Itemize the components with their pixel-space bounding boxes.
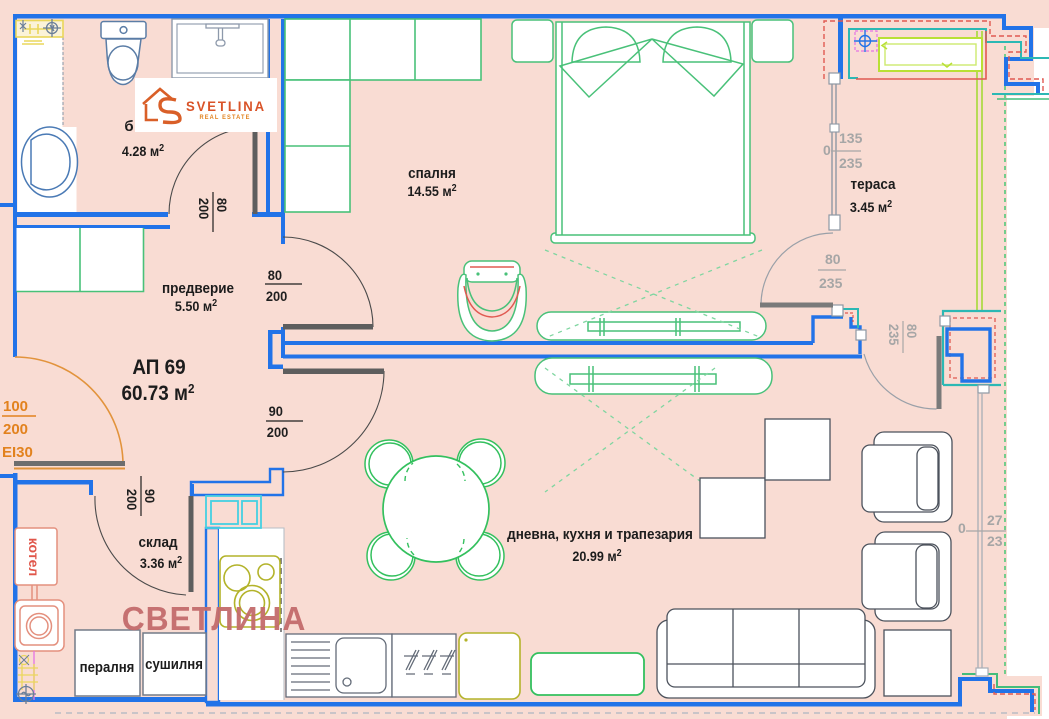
svg-text:135: 135	[839, 130, 863, 146]
svg-text:235: 235	[886, 324, 902, 346]
svg-text:27: 27	[987, 512, 1003, 528]
svg-text:предверие: предверие	[162, 280, 234, 297]
svg-text:60.73 м2: 60.73 м2	[121, 381, 194, 405]
svg-text:4.28 м2: 4.28 м2	[122, 143, 164, 160]
svg-text:SVETLINA: SVETLINA	[186, 99, 266, 114]
svg-text:80: 80	[268, 268, 282, 284]
svg-text:90: 90	[269, 404, 283, 420]
svg-text:склад: склад	[138, 534, 177, 551]
svg-text:23: 23	[987, 533, 1003, 549]
svg-text:80: 80	[214, 198, 230, 212]
svg-text:сушилня: сушилня	[145, 655, 203, 672]
svg-text:80: 80	[825, 251, 841, 267]
svg-text:дневна, кухня и трапезария: дневна, кухня и трапезария	[507, 526, 693, 543]
svg-text:0: 0	[958, 520, 966, 536]
svg-text:б: б	[124, 118, 133, 135]
svg-text:200: 200	[266, 289, 287, 305]
svg-text:0: 0	[823, 142, 831, 158]
svg-text:СВЕТЛИНА: СВЕТЛИНА	[122, 599, 307, 637]
svg-text:EI30: EI30	[2, 444, 33, 461]
svg-text:5.50 м2: 5.50 м2	[175, 298, 217, 315]
svg-text:235: 235	[839, 155, 863, 171]
svg-text:3.36 м2: 3.36 м2	[140, 555, 182, 572]
svg-text:АП 69: АП 69	[132, 356, 185, 379]
svg-text:14.55 м2: 14.55 м2	[407, 183, 456, 200]
svg-text:80: 80	[904, 324, 920, 338]
svg-text:90: 90	[142, 489, 158, 503]
svg-text:100: 100	[3, 398, 28, 415]
svg-text:235: 235	[819, 275, 843, 291]
svg-text:200: 200	[267, 425, 288, 441]
svg-text:тераса: тераса	[851, 176, 897, 193]
svg-text:REAL ESTATE: REAL ESTATE	[199, 115, 250, 121]
svg-text:200: 200	[3, 421, 28, 438]
svg-text:пералня: пералня	[80, 658, 135, 675]
svg-text:спалня: спалня	[408, 165, 456, 182]
svg-text:200: 200	[124, 489, 140, 510]
svg-text:3.45 м2: 3.45 м2	[850, 199, 892, 216]
svg-text:котел: котел	[26, 538, 42, 577]
svg-text:20.99 м2: 20.99 м2	[572, 548, 621, 565]
svg-text:200: 200	[196, 198, 212, 219]
